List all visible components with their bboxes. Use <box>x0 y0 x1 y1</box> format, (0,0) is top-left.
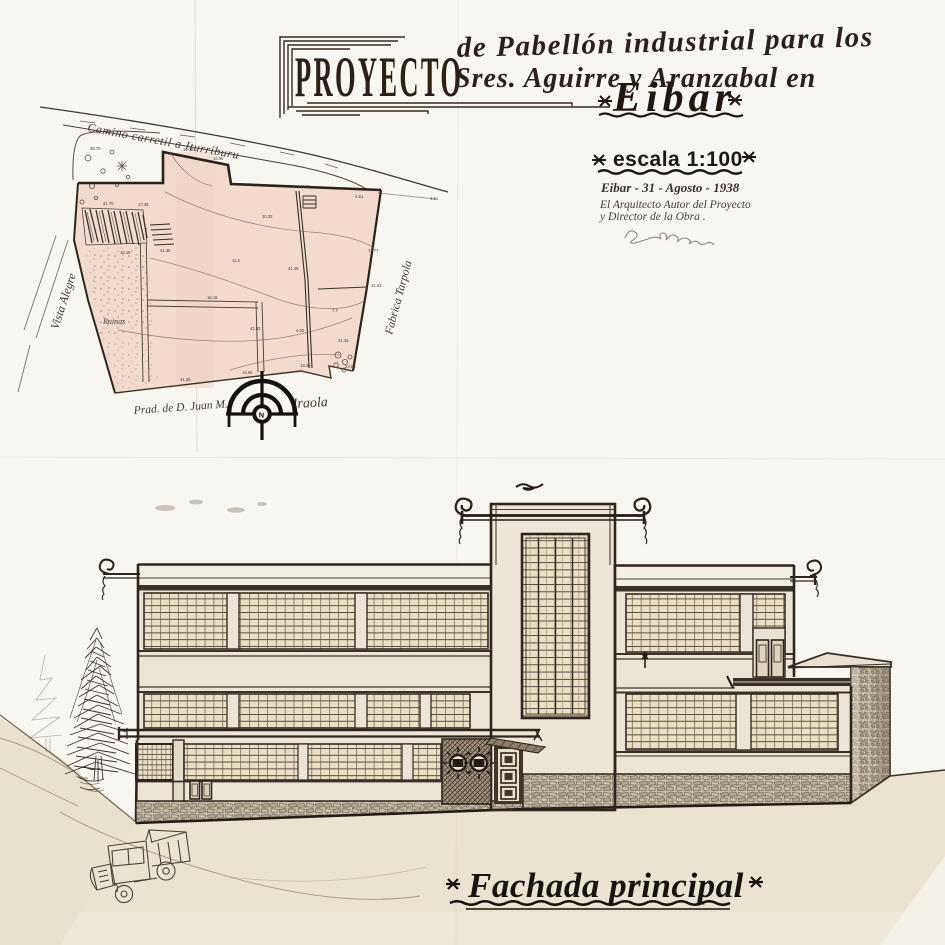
svg-text:16.18: 16.18 <box>120 250 131 255</box>
svg-text:10.32: 10.32 <box>262 214 273 219</box>
svg-text:4.51: 4.51 <box>355 194 364 199</box>
svg-text:14.15: 14.15 <box>183 147 194 152</box>
svg-text:y Director de la Obra .: y Director de la Obra . <box>599 211 706 223</box>
svg-text:13.35: 13.35 <box>300 363 311 368</box>
svg-text:El Arquitecto Autor del Proyec: El Arquitecto Autor del Proyecto <box>599 199 751 211</box>
svg-text:7.7: 7.7 <box>332 308 338 313</box>
svg-text:41.92: 41.92 <box>250 326 261 331</box>
svg-text:PROYECTO: PROYECTO <box>295 45 463 109</box>
svg-text:41.70: 41.70 <box>103 201 114 206</box>
svg-text:Eibar - 31 - Agosto - 1938: Eibar - 31 - Agosto - 1938 <box>600 180 740 195</box>
svg-text:N: N <box>259 411 264 420</box>
svg-text:41.45: 41.45 <box>288 266 299 271</box>
svg-text:4.92: 4.92 <box>296 328 305 333</box>
svg-text:4.51: 4.51 <box>430 196 439 201</box>
svg-text:escala 1:100: escala 1:100 <box>613 148 743 171</box>
svg-text:11.2: 11.2 <box>232 258 241 263</box>
svg-text:41.11: 41.11 <box>300 184 311 189</box>
svg-text:41.03: 41.03 <box>371 283 382 288</box>
svg-text:23.85: 23.85 <box>345 364 356 369</box>
svg-text:16.15: 16.15 <box>207 295 218 300</box>
svg-text:14.85: 14.85 <box>242 370 253 375</box>
svg-text:16.95: 16.95 <box>213 156 224 161</box>
svg-text:21.45: 21.45 <box>338 338 349 343</box>
svg-text:39.70: 39.70 <box>90 146 101 151</box>
svg-text:41.35: 41.35 <box>180 377 191 382</box>
svg-text:17.35: 17.35 <box>138 202 149 207</box>
svg-text:Ruinas: Ruinas <box>102 317 125 326</box>
svg-text:Fachada principal: Fachada principal <box>467 866 744 905</box>
svg-text:41.35: 41.35 <box>160 248 171 253</box>
svg-text:17.77: 17.77 <box>368 248 379 253</box>
